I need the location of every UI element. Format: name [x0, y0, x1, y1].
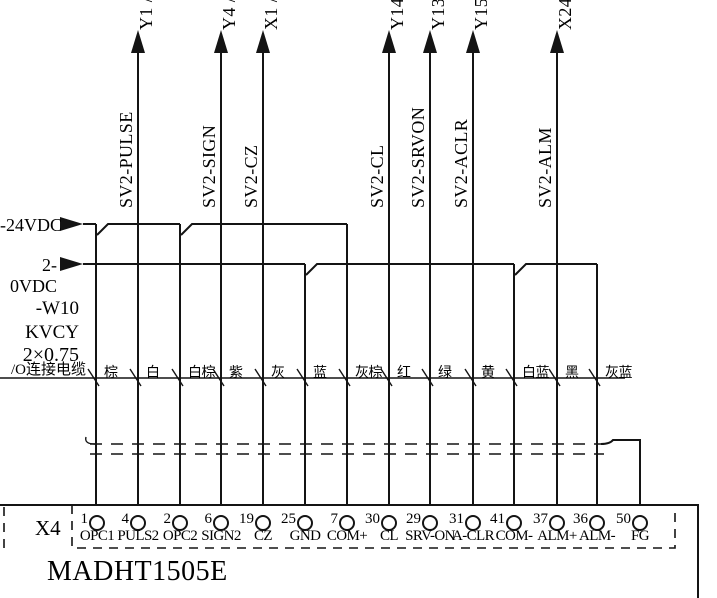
connector-label: X4 — [35, 516, 61, 541]
shield-left-hook — [86, 437, 95, 444]
arrow-up-icon — [382, 30, 396, 53]
pin-number: 19 — [222, 511, 254, 528]
wire-color-label: 棕 — [104, 362, 118, 382]
wiring-diagram: -24VDC 2-0VDC -W10 KVCY 2×0.75 /O连接电缆 Y1… — [0, 0, 717, 598]
wire-color-label: 黄 — [481, 362, 495, 382]
pin-number: 37 — [516, 511, 548, 528]
wire-color-label: 黑 — [565, 362, 579, 382]
pin-number: 25 — [264, 511, 296, 528]
arrow-up-icon — [131, 30, 145, 53]
wire-color-label: 蓝 — [313, 362, 327, 382]
pin-number: 6 — [180, 511, 212, 528]
wire-color-label: 白 — [146, 362, 160, 382]
wire-color-label: 红 — [397, 362, 411, 382]
device-model-label: MADHT1505E — [47, 556, 228, 588]
cable-note-line-2: KVCY — [0, 323, 79, 342]
pin-number: 29 — [389, 511, 421, 528]
pin-number: 4 — [97, 511, 129, 528]
cable-note-line-4: /O连接电缆 — [0, 363, 86, 378]
signal-target-label: Y4 / — [219, 0, 240, 30]
signal-name-label: SV2-SIGN — [199, 125, 220, 208]
pin-number: 7 — [306, 511, 338, 528]
wire-color-label: 灰 — [271, 362, 285, 382]
arrow-up-icon — [550, 30, 564, 53]
diagram-lines — [0, 0, 717, 598]
wire-color-label: 白棕 — [188, 362, 215, 382]
wire-color-label: 绿 — [438, 362, 452, 382]
signal-target-label: Y15 — [471, 0, 492, 30]
pin-number: 36 — [556, 511, 588, 528]
arrow-right-icon — [60, 257, 83, 271]
signal-target-label: Y1 / — [136, 0, 157, 30]
pin-number: 50 — [599, 511, 631, 528]
pin-number: 30 — [348, 511, 380, 528]
arrow-up-icon — [466, 30, 480, 53]
pin-name: FG — [608, 528, 672, 545]
signal-name-label: SV2-SRVON — [408, 107, 429, 208]
signal-target-label: X24 — [555, 0, 576, 30]
signal-name-label: SV2-ALM — [535, 127, 556, 208]
signal-target-label: Y13 — [428, 0, 449, 30]
wire-color-label: 白蓝 — [522, 362, 549, 382]
arrow-right-icon — [60, 217, 83, 231]
signal-name-label: SV2-PULSE — [116, 111, 137, 208]
signal-target-label: X1 / — [261, 0, 282, 30]
signal-target-label: Y14 — [387, 0, 408, 30]
rail-label-24vdc: -24VDC — [0, 215, 57, 236]
pin-number: 31 — [432, 511, 464, 528]
arrow-up-icon — [256, 30, 270, 53]
rail-label-0vdc: 2-0VDC — [0, 255, 57, 297]
pin-number: 2 — [139, 511, 171, 528]
wire-color-label: 灰棕 — [355, 362, 382, 382]
power-rail-line — [83, 224, 347, 235]
cable-note-line-1: -W10 — [0, 299, 79, 318]
arrow-up-icon — [423, 30, 437, 53]
signal-name-label: SV2-CZ — [241, 145, 262, 208]
power-rail-line — [83, 264, 597, 275]
shield-to-fg-wire — [601, 440, 640, 505]
signal-name-label: SV2-CL — [367, 145, 388, 208]
arrow-up-icon — [214, 30, 228, 53]
wire-color-label: 紫 — [229, 362, 243, 382]
pin-number: 41 — [473, 511, 505, 528]
wire-color-label: 灰蓝 — [605, 362, 632, 382]
signal-name-label: SV2-ACLR — [451, 119, 472, 208]
